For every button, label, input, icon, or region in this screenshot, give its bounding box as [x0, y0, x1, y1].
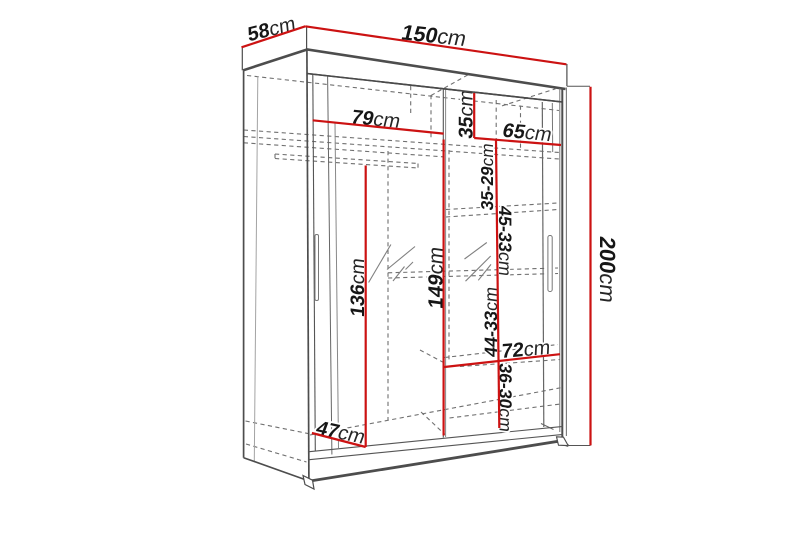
svg-text:200cm: 200cm: [595, 235, 620, 304]
svg-text:35-29cm: 35-29cm: [477, 142, 497, 212]
